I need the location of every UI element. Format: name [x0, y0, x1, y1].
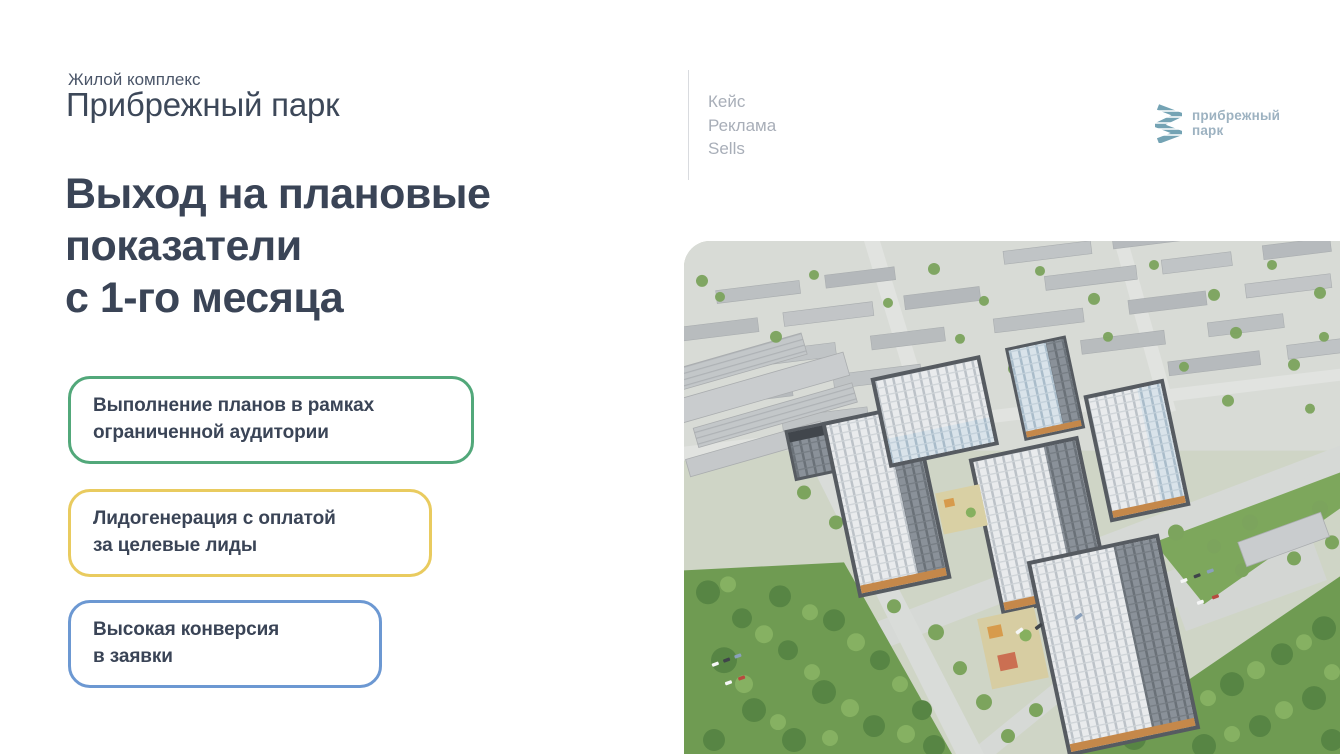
page-title: Выход на плановые показатели с 1-го меся…: [65, 168, 625, 324]
feature-text: Лидогенерация с оплатой за целевые лиды: [93, 506, 336, 560]
meta-item-case: Кейс: [708, 90, 776, 114]
feature-card-limited-audience: Выполнение планов в рамках ограниченной …: [68, 376, 474, 464]
zigzag-wave-icon: [1155, 103, 1182, 143]
slide: Жилой комплекс Прибрежный парк Выход на …: [0, 0, 1340, 754]
meta-item-sells: Sells: [708, 137, 776, 161]
meta-item-ads: Реклама: [708, 114, 776, 138]
meta-list: Кейс Реклама Sells: [708, 90, 776, 161]
complex-name: Прибрежный парк: [66, 86, 339, 124]
vertical-divider: [688, 70, 689, 180]
feature-card-conversion: Высокая конверсия в заявки: [68, 600, 382, 688]
feature-text: Высокая конверсия в заявки: [93, 617, 279, 671]
feature-text: Выполнение планов в рамках ограниченной …: [93, 393, 374, 447]
aerial-render-illustration: [684, 241, 1340, 754]
feature-card-leadgen: Лидогенерация с оплатой за целевые лиды: [68, 489, 432, 577]
brand-logo: прибрежный парк: [1155, 103, 1280, 143]
aerial-photo: [684, 241, 1340, 754]
brand-logo-text: прибрежный парк: [1192, 109, 1280, 139]
